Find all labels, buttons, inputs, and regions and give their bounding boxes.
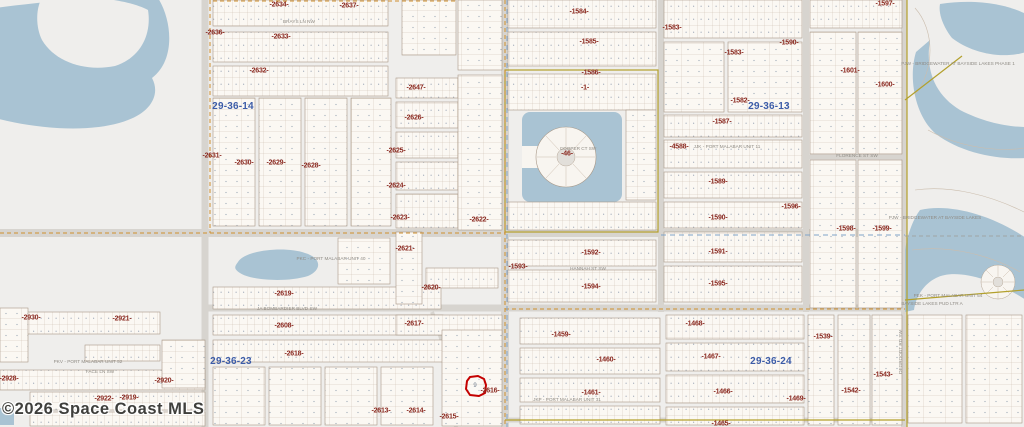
plat-label: -2618- xyxy=(284,351,303,358)
street-label: FLORENCE ST SW xyxy=(836,154,878,159)
plat-label: -2631- xyxy=(202,153,221,160)
plat-label: -1585- xyxy=(579,39,598,46)
street-label: JJK - PORT MALABAR UNIT 11 xyxy=(694,145,761,150)
plat-label: -1600- xyxy=(875,82,894,89)
plat-label: -1543- xyxy=(873,372,892,379)
copyright-text: ©2026 Space Coast MLS xyxy=(2,400,204,419)
plat-label: -1593- xyxy=(508,264,527,271)
plat-label: -1589- xyxy=(708,179,727,186)
street-label: FACE LN SW xyxy=(86,370,114,375)
street-label: COOPER CT SW xyxy=(560,147,597,152)
street-label: HANNAH ST SW xyxy=(570,267,606,272)
plat-label: -1583- xyxy=(724,50,743,57)
plat-label: -2619- xyxy=(274,291,293,298)
street-label: PEK - PORT MALABAR UNIT 54 xyxy=(914,294,983,299)
street-label: PKV - PORT MALABAR UNIT 52 xyxy=(54,360,123,365)
plat-label: -1466- xyxy=(713,389,732,396)
plat-label: -2632- xyxy=(249,68,268,75)
plat-label: -1460- xyxy=(596,357,615,364)
plat-label: -1- xyxy=(581,85,589,92)
street-label: DEGROODT RD SW xyxy=(899,330,904,374)
plat-label: -1469- xyxy=(786,396,805,403)
plat-label: -2634- xyxy=(269,2,288,9)
plat-label: -1590- xyxy=(779,40,798,47)
plat-label: -1590- xyxy=(708,215,727,222)
street-label: PJW - BRIDGEWATER AT BAYSIDE LAKES PHASE… xyxy=(901,62,1015,67)
section-label: 29-36-24 xyxy=(750,357,792,367)
plat-label: -2620- xyxy=(421,285,440,292)
plat-label: -2624- xyxy=(386,183,405,190)
plat-label: -1539- xyxy=(813,334,832,341)
plat-label: -2630- xyxy=(234,160,253,167)
street-label: BAYSIDE LAKES PUD LTR A xyxy=(901,302,962,307)
plat-label: -46- xyxy=(561,151,573,158)
plat-label: -2613- xyxy=(371,408,390,415)
highlighted-lot-number: 9 xyxy=(473,383,476,389)
plat-label: -2614- xyxy=(406,408,425,415)
plat-label: -2623- xyxy=(390,215,409,222)
plat-label: -2629- xyxy=(266,160,285,167)
section-label: 29-36-14 xyxy=(212,102,254,112)
bayside-culdesac xyxy=(981,265,1015,299)
plat-label: -1592- xyxy=(581,250,600,257)
plat-label: -2626- xyxy=(404,115,423,122)
plat-label: -1595- xyxy=(708,281,727,288)
plat-label: -1597- xyxy=(875,1,894,8)
street-label: JKP - PORT MALABAR UNIT 31 xyxy=(533,398,601,403)
plat-label: -2637- xyxy=(339,3,358,10)
plat-label: -1587- xyxy=(712,119,731,126)
plat-label: -1586- xyxy=(581,70,600,77)
plat-label: -1598- xyxy=(836,226,855,233)
plat-label: -2616- xyxy=(480,388,499,395)
plat-label: -2647- xyxy=(406,85,425,92)
section-label: 29-36-13 xyxy=(748,102,790,112)
plat-label: -2921- xyxy=(112,316,131,323)
plat-label: -2617- xyxy=(404,321,423,328)
section-label: 29-36-23 xyxy=(210,357,252,367)
plat-label: -2625- xyxy=(386,148,405,155)
plat-label: -1599- xyxy=(872,226,891,233)
street-label: PKC - PORT MALABAR UNIT 40 xyxy=(297,257,366,262)
plat-label: -2930- xyxy=(21,315,40,322)
plat-label: -2633- xyxy=(271,34,290,41)
plat-label: -1459- xyxy=(551,332,570,339)
plat-label: -1594- xyxy=(581,284,600,291)
plat-label: -1591- xyxy=(708,249,727,256)
plat-label: -1582- xyxy=(730,98,749,105)
plat-label: -2628- xyxy=(301,163,320,170)
plat-label: -2622- xyxy=(469,217,488,224)
plat-label: -2928- xyxy=(0,376,19,383)
street-label: PJW - BRIDGEWATER AT BAYSIDE LAKES xyxy=(889,216,982,221)
plat-label: -2920- xyxy=(154,378,173,385)
plat-label: -1583- xyxy=(662,25,681,32)
plat-label: -2636- xyxy=(205,30,224,37)
plat-label: -2615- xyxy=(439,414,458,421)
plat-label: -2608- xyxy=(274,323,293,330)
plat-label: -1467- xyxy=(701,354,720,361)
plat-label: -1542- xyxy=(841,388,860,395)
plat-label: -1601- xyxy=(840,68,859,75)
plat-label: -2621- xyxy=(395,246,414,253)
plat-label: -1468- xyxy=(685,321,704,328)
plat-label: -1465- xyxy=(711,421,730,427)
plat-label: -4588- xyxy=(669,144,688,151)
plat-label: -1584- xyxy=(569,9,588,16)
plat-label: -1596- xyxy=(781,204,800,211)
parcel-map[interactable]: -2636--2634--2637--2633--2632--2647--262… xyxy=(0,0,1024,427)
map-graphics xyxy=(0,0,1024,427)
plat-label: -1461- xyxy=(581,390,600,397)
street-label: BRAYS LN NW xyxy=(283,20,315,25)
street-label: JA BOMBARDIER BLVD SW xyxy=(257,307,317,312)
